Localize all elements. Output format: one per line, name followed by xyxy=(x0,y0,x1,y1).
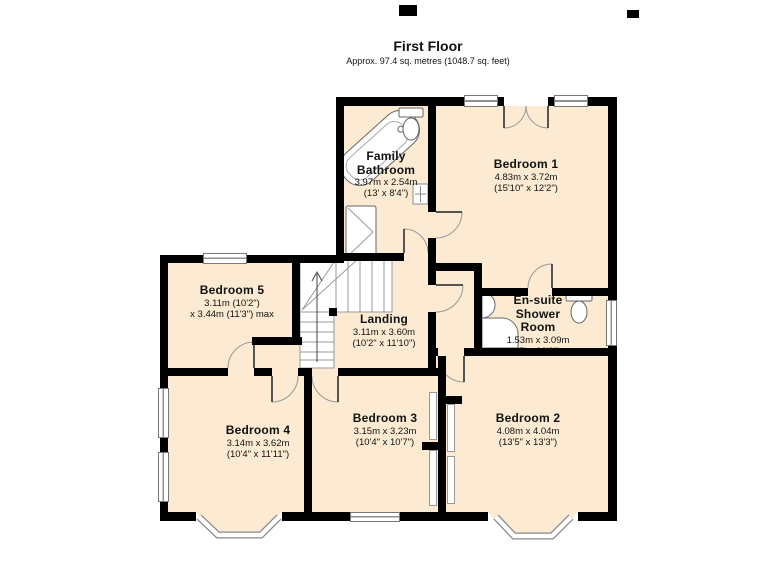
stray-mark xyxy=(627,10,639,18)
wall xyxy=(344,253,404,261)
wall xyxy=(474,288,528,296)
room-label-family-bathroom: Family Bathroom 3.97m x 2.54m (13' x 8'4… xyxy=(346,150,426,199)
room-label-bedroom-5: Bedroom 5 3.11m (10'2") x 3.44m (11'3") … xyxy=(170,284,294,320)
wardrobe-bedroom2 xyxy=(447,404,455,452)
plan-title: First Floor xyxy=(268,38,588,54)
window-bedroom1-left xyxy=(464,95,498,107)
wardrobe-bedroom2 xyxy=(447,456,455,504)
wall xyxy=(428,106,436,212)
wall xyxy=(552,288,608,296)
wardrobe-bedroom3 xyxy=(429,392,437,440)
window-bedroom4-upper xyxy=(158,388,169,438)
wall xyxy=(578,512,617,521)
window-bedroom1-right xyxy=(554,95,588,107)
wall xyxy=(446,396,462,404)
bay-window-bedroom4 xyxy=(196,512,282,535)
window-ensuite xyxy=(606,300,617,346)
wall xyxy=(292,255,300,345)
room-label-landing: Landing 3.11m x 3.60m (10'2" x 11'10") xyxy=(334,313,434,349)
wall xyxy=(464,348,608,356)
wall xyxy=(160,512,196,521)
wall xyxy=(498,97,504,106)
stray-mark xyxy=(399,5,417,16)
wall xyxy=(252,337,302,345)
wall xyxy=(160,255,344,263)
wall xyxy=(304,376,312,512)
wardrobe-bedroom3 xyxy=(429,450,437,506)
wall xyxy=(336,97,344,263)
room-label-bedroom-1: Bedroom 1 4.83m x 3.72m (15'10" x 12'2") xyxy=(446,158,606,194)
wall xyxy=(428,348,438,356)
window-bedroom5 xyxy=(203,253,247,264)
bay-window-bedroom2 xyxy=(488,512,578,536)
wall xyxy=(422,442,438,450)
wall xyxy=(298,368,312,376)
plan-subtitle: Approx. 97.4 sq. metres (1048.7 sq. feet… xyxy=(238,56,618,66)
wall xyxy=(438,356,446,512)
window-bedroom3 xyxy=(350,512,400,522)
wall xyxy=(254,368,272,376)
wall xyxy=(338,368,438,376)
wall xyxy=(436,263,474,271)
wall xyxy=(336,97,464,106)
wall xyxy=(160,368,228,376)
floorplan-page: First Floor Approx. 97.4 sq. metres (104… xyxy=(0,0,768,576)
room-label-bedroom-2: Bedroom 2 4.08m x 4.04m (13'5" x 13'3") xyxy=(455,412,601,448)
window-bedroom4-lower xyxy=(158,452,169,502)
wall xyxy=(474,263,482,356)
wall xyxy=(428,312,436,368)
wall xyxy=(428,238,436,285)
